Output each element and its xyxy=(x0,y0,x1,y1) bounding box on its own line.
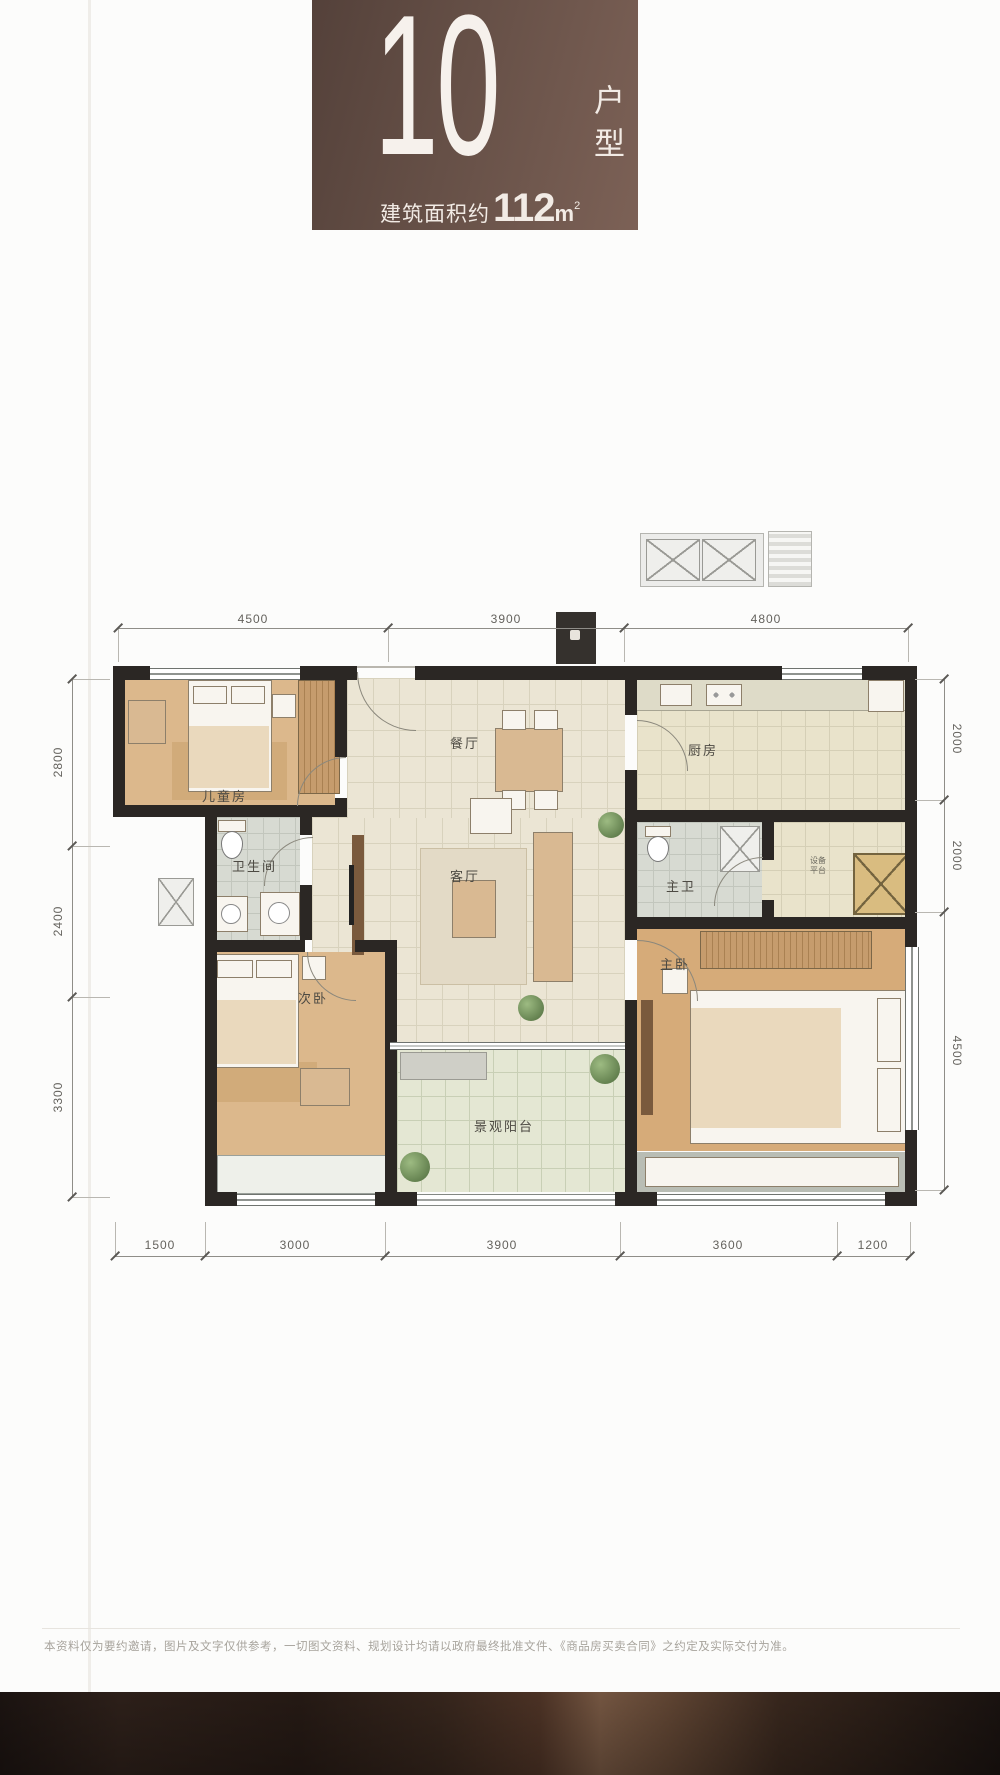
wall-segment xyxy=(113,666,125,817)
dim-label: 4500 xyxy=(950,1036,964,1067)
sofa xyxy=(533,832,573,982)
room-label-living: 客厅 xyxy=(450,866,480,885)
shaft-icon xyxy=(570,630,580,640)
footer-divider xyxy=(42,1628,960,1629)
dim-label: 4500 xyxy=(238,612,269,626)
bottom-bar xyxy=(0,1692,1000,1775)
extension-line xyxy=(72,997,110,998)
wall-segment xyxy=(205,805,217,1204)
wall-segment xyxy=(625,770,637,940)
wall-segment xyxy=(905,1130,917,1206)
extension-line xyxy=(72,1197,110,1198)
plant-icon xyxy=(400,1152,430,1182)
desk xyxy=(128,700,166,744)
closet xyxy=(700,931,872,969)
dim-label: 2800 xyxy=(51,747,65,778)
pillow xyxy=(193,686,227,704)
disclaimer-text: 本资料仅为要约邀请，图片及文字仅供参考，一切图文资料、规划设计均请以政府最终批准… xyxy=(44,1638,794,1654)
room-label-balcony: 景观阳台 xyxy=(474,1116,534,1135)
plant-icon xyxy=(590,1054,620,1084)
wall-segment xyxy=(113,805,347,817)
room-label-master-bathroom: 主卫 xyxy=(666,876,696,895)
dim-label: 2000 xyxy=(950,724,964,755)
sink-basin xyxy=(268,902,290,924)
dim-label: 3900 xyxy=(487,1238,518,1252)
wall-segment xyxy=(300,885,312,940)
blanket xyxy=(691,1008,841,1128)
dim-label: 2400 xyxy=(51,906,65,937)
wall-segment xyxy=(762,822,774,860)
tv-icon xyxy=(349,865,354,925)
room-label-equipment: 设备平台 xyxy=(810,856,832,876)
equipment-platform-box xyxy=(853,853,909,915)
extension-line xyxy=(72,846,110,847)
extension-line xyxy=(205,1222,206,1256)
dim-label: 1200 xyxy=(858,1238,889,1252)
pillow xyxy=(231,686,265,704)
area-unit-sup: 2 xyxy=(574,200,580,212)
bedroom-bay-window-sill xyxy=(217,1155,387,1194)
window xyxy=(782,668,862,680)
dimension-line-left xyxy=(72,679,73,1197)
blanket xyxy=(189,726,269,788)
dim-label: 1500 xyxy=(145,1238,176,1252)
entrance-threshold xyxy=(357,666,415,668)
blanket xyxy=(213,1000,296,1064)
room-label-second-bedroom: 次卧 xyxy=(298,988,328,1007)
coffee-table xyxy=(452,880,496,938)
area-unit: m xyxy=(555,201,575,227)
window xyxy=(657,1194,885,1206)
fridge-icon xyxy=(868,680,904,712)
wall-segment xyxy=(300,666,357,680)
dimension-line-right xyxy=(944,679,945,1190)
wall-segment xyxy=(625,1000,637,1204)
wall-segment xyxy=(205,940,305,952)
wall-segment xyxy=(637,666,782,680)
extension-line xyxy=(115,1222,116,1256)
balcony-cabinet xyxy=(400,1052,487,1080)
wall-segment xyxy=(637,810,915,822)
extension-line xyxy=(908,628,909,662)
master-bay-window-sill xyxy=(645,1157,899,1187)
dim-label: 4800 xyxy=(751,612,782,626)
pillow xyxy=(256,960,292,978)
window xyxy=(905,947,919,1130)
wall-segment xyxy=(905,666,917,947)
room-label-children: 儿童房 xyxy=(202,786,247,805)
extension-line xyxy=(910,1222,911,1256)
armchair xyxy=(470,798,512,834)
wall-segment xyxy=(205,1192,237,1206)
dimension-line-bottom xyxy=(115,1256,910,1257)
dim-label: 2000 xyxy=(950,841,964,872)
chair xyxy=(502,710,526,730)
wall-segment xyxy=(762,900,774,917)
plant-icon xyxy=(518,995,544,1021)
extension-line xyxy=(624,628,625,662)
extension-line xyxy=(837,1222,838,1256)
extension-line xyxy=(620,1222,621,1256)
unit-area: 建筑面积约 112 m 2 xyxy=(380,186,580,231)
window xyxy=(150,668,300,680)
wall-segment xyxy=(385,940,397,1204)
pillow xyxy=(877,1068,901,1132)
extension-line xyxy=(385,1222,386,1256)
unit-badge: 10 户型 建筑面积约 112 m 2 xyxy=(312,0,638,230)
balcony-glass xyxy=(417,1194,615,1206)
wall-segment xyxy=(335,666,347,757)
wall-segment xyxy=(637,917,915,929)
wall-segment xyxy=(300,817,312,835)
dim-label: 3000 xyxy=(280,1238,311,1252)
room-label-kitchen: 厨房 xyxy=(688,740,718,759)
nightstand xyxy=(272,694,296,718)
area-prefix: 建筑面积约 xyxy=(380,198,490,228)
stairs-icon xyxy=(768,531,812,587)
ac-unit-box xyxy=(158,878,194,926)
floorplan-page: 10 户型 建筑面积约 112 m 2 xyxy=(0,0,1000,1775)
area-value: 112 xyxy=(493,186,555,231)
room-label-bathroom: 卫生间 xyxy=(232,856,277,875)
dim-label: 3600 xyxy=(713,1238,744,1252)
window xyxy=(237,1194,375,1206)
dining-table xyxy=(495,728,563,792)
room-label-dining: 餐厅 xyxy=(450,733,480,752)
dim-label: 3900 xyxy=(491,612,522,626)
elevator-icon xyxy=(702,539,756,581)
chair xyxy=(534,710,558,730)
extension-line xyxy=(388,628,389,662)
plant-icon xyxy=(598,812,624,838)
unit-type-label: 户型 xyxy=(584,84,629,170)
sink-icon xyxy=(660,684,692,706)
pillow xyxy=(217,960,253,978)
room-label-master-bedroom: 主卧 xyxy=(660,954,690,973)
balcony-sliding-door xyxy=(390,1042,625,1050)
wall-segment xyxy=(415,666,637,680)
tv-cabinet xyxy=(641,1000,653,1115)
extension-line xyxy=(72,679,110,680)
extension-line xyxy=(118,628,119,662)
wall-segment xyxy=(625,666,637,715)
dim-label: 3300 xyxy=(51,1082,65,1113)
desk xyxy=(300,1068,350,1106)
washing-machine-door xyxy=(221,904,241,924)
elevator-icon xyxy=(646,539,700,581)
dimension-line-top xyxy=(118,628,908,629)
chair xyxy=(534,790,558,810)
unit-number: 10 xyxy=(374,0,498,186)
pillow xyxy=(877,998,901,1062)
stove-icon xyxy=(706,684,742,706)
